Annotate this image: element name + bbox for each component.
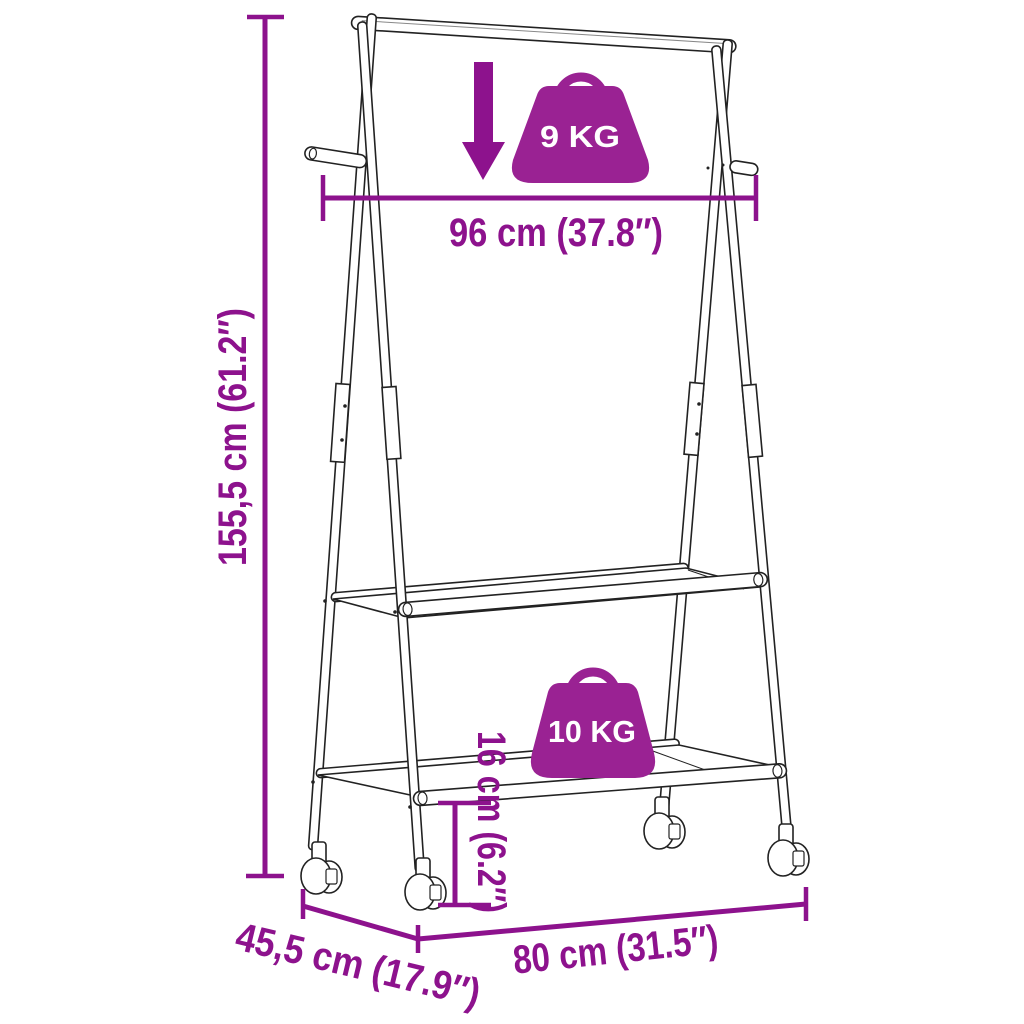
- shelf-capacity-label: 10 KG: [548, 714, 636, 749]
- depth-dimension: 45,5 cm (17.9″): [231, 889, 484, 1016]
- caster-wheel-back-right: [644, 797, 685, 849]
- rail-capacity-badge: 9 KG: [512, 77, 649, 183]
- caster-wheel-front-left: [405, 858, 446, 910]
- rail-capacity-label: 9 KG: [540, 119, 620, 154]
- shelf-clearance-dimension-label: 16 cm (6.2″): [469, 731, 513, 913]
- top-width-dimension: 96 cm (37.8″): [323, 175, 756, 255]
- depth-dimension-label: 45,5 cm (17.9″): [231, 915, 484, 1016]
- height-dimension-label: 155,5 cm (61.2″): [211, 308, 255, 566]
- top-width-dimension-label: 96 cm (37.8″): [449, 211, 663, 255]
- diagram-svg: 155,5 cm (61.2″) 96 cm (37.8″) 9 KG 10 K…: [0, 0, 1024, 1024]
- right-garment-peg: [729, 160, 759, 176]
- right-back-connector-plate: [684, 382, 704, 455]
- shelf-capacity-badge: 10 KG: [531, 672, 655, 778]
- product-dimension-diagram: 155,5 cm (61.2″) 96 cm (37.8″) 9 KG 10 K…: [0, 0, 1024, 1024]
- left-front-connector-plate: [382, 387, 401, 460]
- left-back-connector-plate: [331, 384, 350, 463]
- right-front-connector-plate: [742, 384, 762, 457]
- caster-wheel-front-right: [768, 824, 809, 876]
- hanging-rail: [351, 16, 736, 53]
- caster-wheel-back-left: [301, 842, 342, 894]
- down-arrow-icon: [462, 62, 505, 180]
- height-dimension: 155,5 cm (61.2″): [211, 17, 284, 876]
